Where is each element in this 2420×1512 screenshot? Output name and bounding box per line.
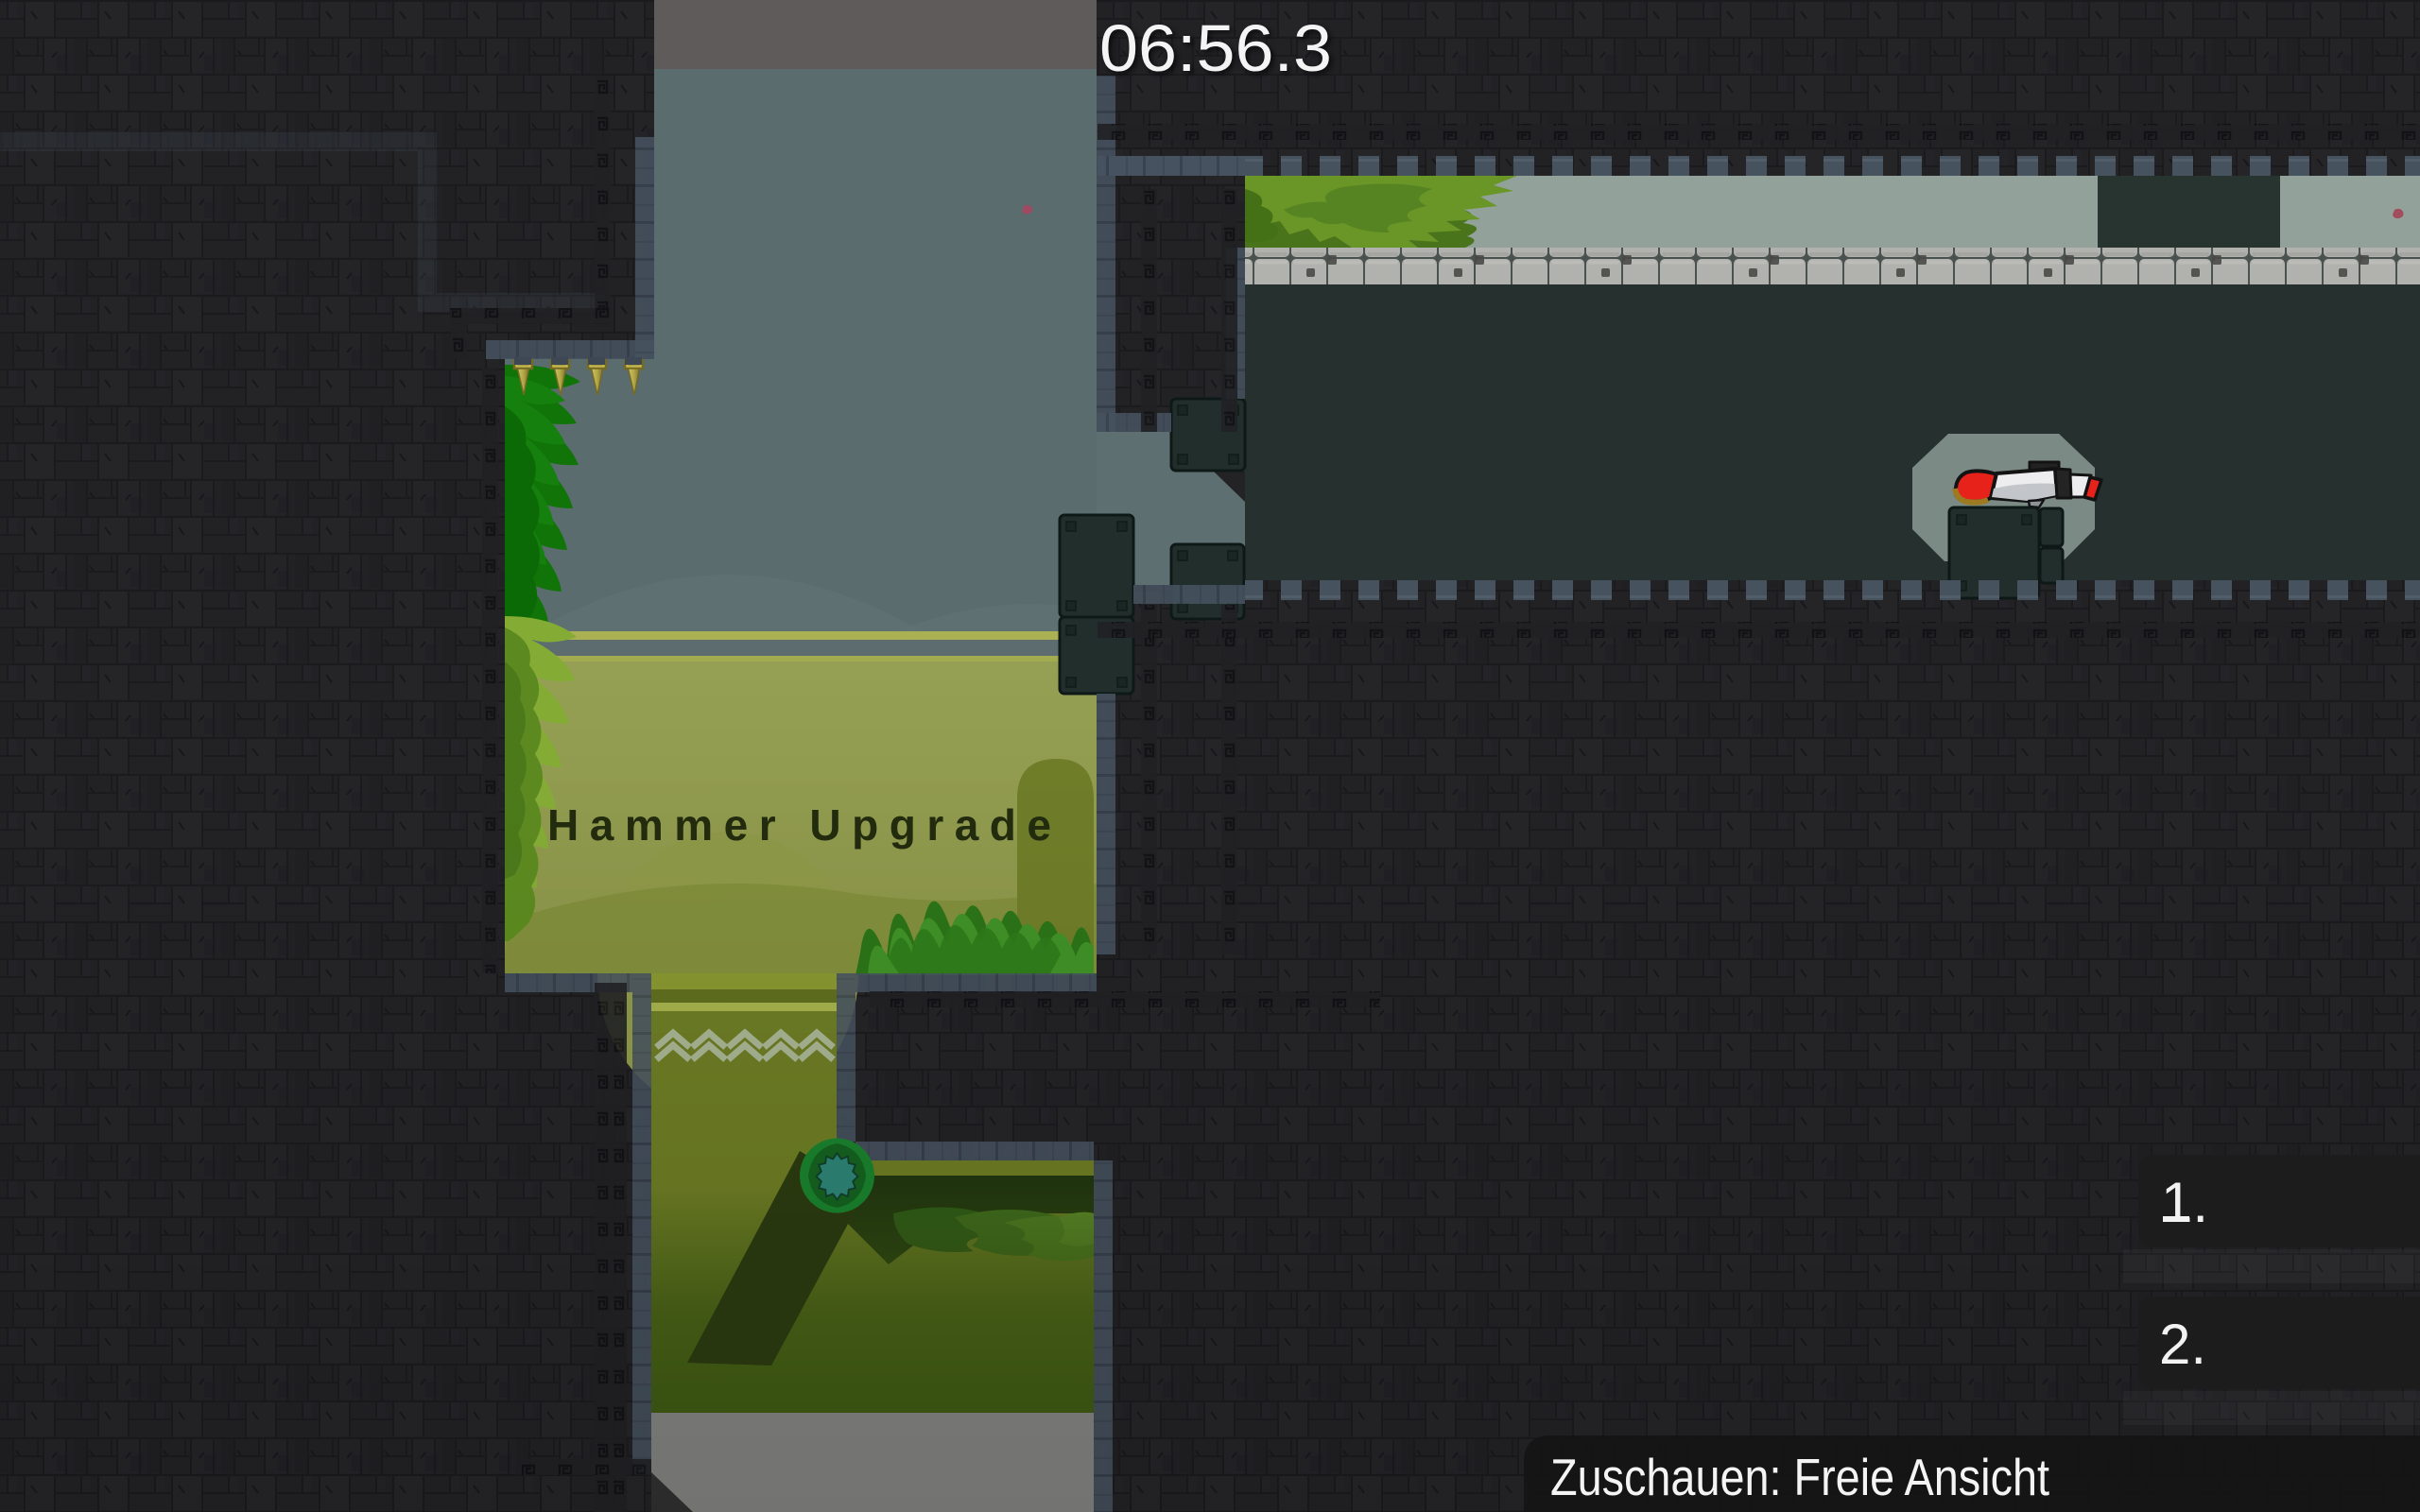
svg-text:1.: 1. <box>2161 1171 2208 1234</box>
svg-text:06:56.3: 06:56.3 <box>1099 11 1332 85</box>
svg-text:2.: 2. <box>2159 1313 2206 1376</box>
svg-text:Zuschauen: Freie Ansicht: Zuschauen: Freie Ansicht <box>1550 1448 2049 1506</box>
